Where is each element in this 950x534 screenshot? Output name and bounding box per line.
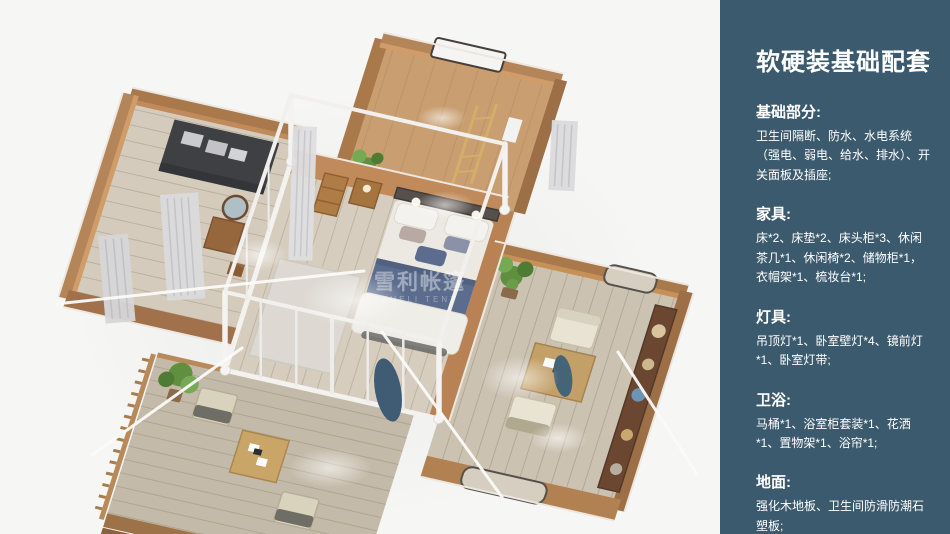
watermark-cn: 雪利帐篷 (374, 270, 466, 294)
section-heading: 基础部分: (756, 101, 934, 122)
section-body: 吊顶灯*1、卧室壁灯*4、镜前灯*1、卧室灯带; (756, 332, 934, 371)
section-body: 马桶*1、浴室柜套装*1、花洒*1、置物架*1、浴帘*1; (756, 415, 934, 454)
section-heading: 家具: (756, 203, 934, 224)
watermark-en: XUELI TENT (382, 295, 458, 304)
section-lighting: 灯具: 吊顶灯*1、卧室壁灯*4、镜前灯*1、卧室灯带; (756, 306, 934, 371)
section-body: 床*2、床垫*2、床头柜*3、休闲茶几*1、休闲椅*2、储物柜*1，衣帽架*1、… (756, 229, 934, 287)
section-body: 强化木地板、卫生间防滑防潮石塑板; (756, 497, 934, 534)
floorplan-3d-view: 雪利帐篷 XUELI TENT (0, 0, 720, 534)
wall-lamp (472, 211, 481, 220)
section-heading: 地面: (756, 471, 934, 492)
section-foundation: 基础部分: 卫生间隔断、防水、水电系统（强电、弱电、给水、排水）、开关面板及插座… (756, 101, 934, 185)
panel-title: 软硬装基础配套 (756, 42, 934, 77)
watermark: 雪利帐篷 XUELI TENT (374, 270, 466, 304)
section-flooring: 地面: 强化木地板、卫生间防滑防潮石塑板; (756, 471, 934, 534)
section-body: 卫生间隔断、防水、水电系统（强电、弱电、给水、排水）、开关面板及插座; (756, 127, 934, 185)
section-bathroom: 卫浴: 马桶*1、浴室柜套装*1、花洒*1、置物架*1、浴帘*1; (756, 389, 934, 454)
section-furniture: 家具: 床*2、床垫*2、床头柜*3、休闲茶几*1、休闲椅*2、储物柜*1，衣帽… (756, 203, 934, 287)
spec-panel: 软硬装基础配套 基础部分: 卫生间隔断、防水、水电系统（强电、弱电、给水、排水）… (720, 0, 950, 534)
brochure-slide: 雪利帐篷 XUELI TENT 软硬装基础配套 基础部分: 卫生间隔断、防水、水… (0, 0, 950, 534)
section-heading: 灯具: (756, 306, 934, 327)
wall-lamp (412, 198, 421, 207)
section-heading: 卫浴: (756, 389, 934, 410)
floorplan-render: 雪利帐篷 XUELI TENT (0, 0, 720, 534)
